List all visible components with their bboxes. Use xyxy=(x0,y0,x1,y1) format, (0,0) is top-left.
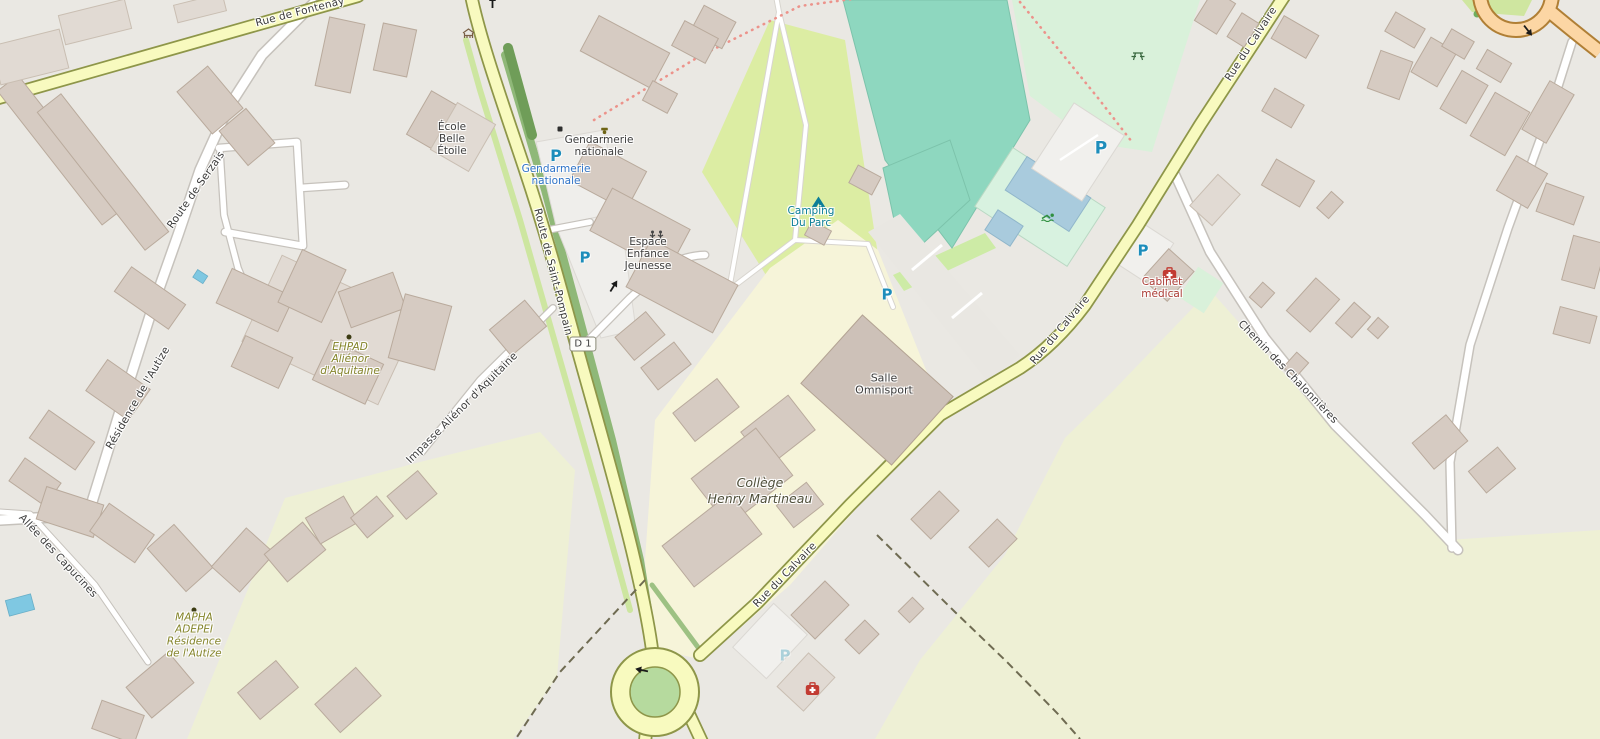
parking-icon-omnisport: P xyxy=(882,288,893,303)
poi-dot-ehpad xyxy=(347,335,352,340)
poi-label-mapha: MAPHAADEPEIRésidencede l'Autize xyxy=(166,612,221,659)
parking-icon-gendarmerie: P xyxy=(550,148,562,164)
parking-icon-road: P xyxy=(580,251,591,266)
poi-label-cabinet-medical: Cabinetmédical xyxy=(1141,277,1182,301)
route-badge-d1: D 1 xyxy=(569,337,596,352)
poi-label-college: CollègeHenry Martineau xyxy=(708,475,813,508)
parking-icon-cabinet: P xyxy=(1138,244,1149,259)
map-canvas[interactable]: Rue de Fontenay Route de Serzais Route d… xyxy=(0,0,1600,739)
poi-label-espace-enfance: EspaceEnfanceJeunesse xyxy=(625,237,672,273)
poi-label-gendarmerie-parking: Gendarmerienationale xyxy=(522,164,591,188)
parking-icon-park: P xyxy=(1095,141,1107,158)
parking-icon-south-faded: P xyxy=(780,649,791,664)
poi-label-camping: CampingDu Parc xyxy=(788,206,835,230)
poi-label-ecole-belle-etoile: ÉcoleBelleÉtoile xyxy=(437,122,466,158)
poi-label-ehpad: EHPADAliénord'Aquitaine xyxy=(320,342,380,378)
poi-label-gendarmerie: Gendarmerienationale xyxy=(565,135,634,159)
roundabout xyxy=(611,648,699,736)
map-base-layers xyxy=(0,0,1600,739)
surveillance-icon xyxy=(558,127,563,132)
poi-label-salle-omnisport: SalleOmnisport xyxy=(855,373,913,398)
